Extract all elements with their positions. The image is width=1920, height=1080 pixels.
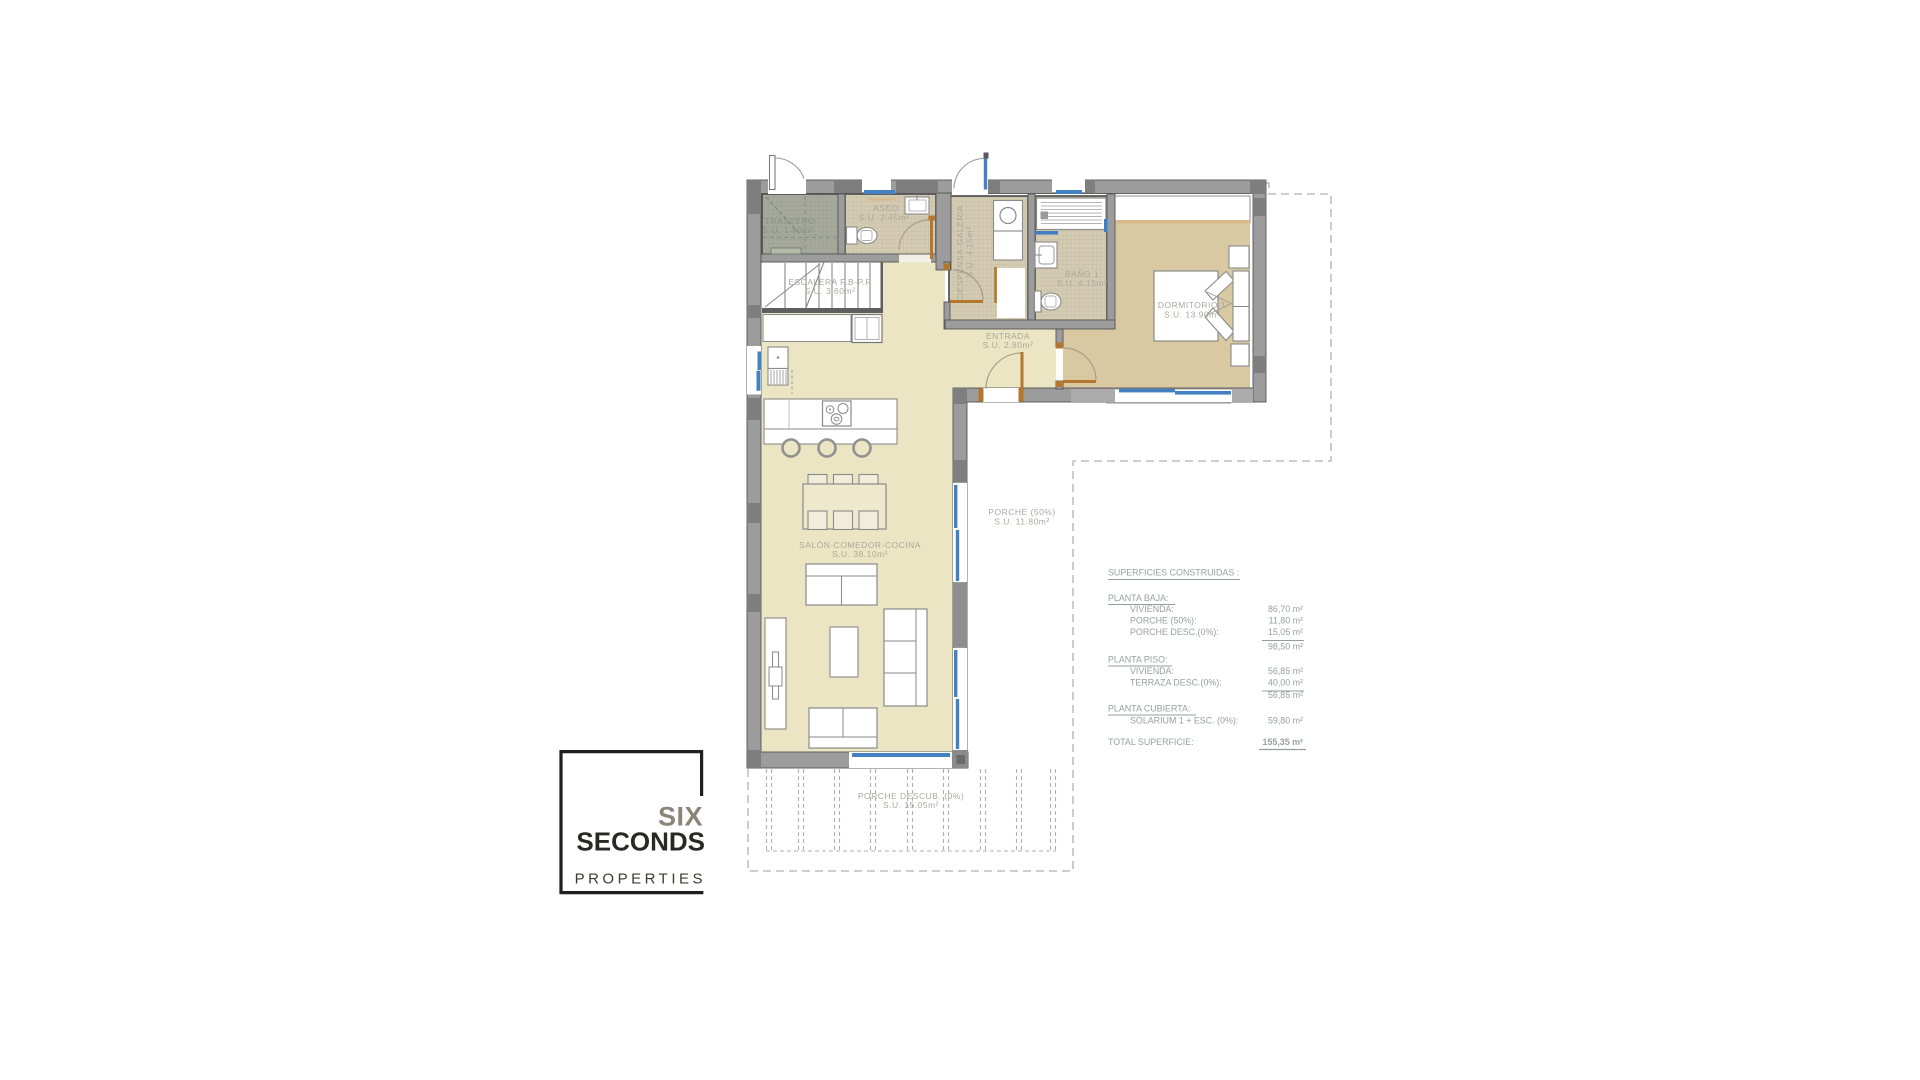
svg-text:S.U. 11.80m²: S.U. 11.80m² — [994, 517, 1049, 527]
svg-text:S.U. 3.60m²: S.U. 3.60m² — [805, 286, 856, 296]
svg-text:S.U. 1.90m²: S.U. 1.90m² — [763, 225, 814, 235]
svg-text:VIVIENDA:: VIVIENDA: — [1130, 604, 1174, 614]
svg-text:98,50 m²: 98,50 m² — [1268, 642, 1303, 652]
svg-text:40,00 m²: 40,00 m² — [1268, 678, 1303, 688]
svg-text:DESPENSA-GALERIA: DESPENSA-GALERIA — [955, 205, 965, 299]
svg-text:ASEO: ASEO — [873, 203, 899, 213]
svg-text:S.U. 38.10m²: S.U. 38.10m² — [832, 549, 888, 559]
svg-text:56,85 m²: 56,85 m² — [1268, 690, 1303, 700]
svg-text:PORCHE (50%):: PORCHE (50%): — [1130, 616, 1197, 626]
svg-text:TOTAL SUPERFICIE:: TOTAL SUPERFICIE: — [1108, 737, 1194, 747]
svg-text:TERRAZA DESC.(0%):: TERRAZA DESC.(0%): — [1130, 678, 1222, 688]
svg-text:SUPERFICIES CONSTRUIDAS :: SUPERFICIES CONSTRUIDAS : — [1108, 568, 1239, 578]
svg-text:S.U. 4.15m²: S.U. 4.15m² — [1057, 278, 1108, 288]
svg-text:PROPERTIES: PROPERTIES — [575, 871, 706, 888]
svg-text:VIVIENDA:: VIVIENDA: — [1130, 666, 1174, 676]
svg-text:PLANTA PISO:: PLANTA PISO: — [1108, 655, 1168, 665]
svg-text:PORCHE DESC.(0%):: PORCHE DESC.(0%): — [1130, 627, 1219, 637]
svg-text:56,85 m²: 56,85 m² — [1268, 666, 1303, 676]
svg-text:S.U. 4.15m²: S.U. 4.15m² — [965, 227, 975, 278]
svg-text:SOLARIUM 1 + ESC. (0%):: SOLARIUM 1 + ESC. (0%): — [1130, 716, 1238, 726]
svg-text:15,05 m²: 15,05 m² — [1268, 627, 1303, 637]
svg-text:PLANTA CUBIERTA:: PLANTA CUBIERTA: — [1108, 704, 1190, 714]
svg-text:S.U. 13.90m²: S.U. 13.90m² — [1164, 310, 1220, 320]
svg-text:S.U. 2.80m²: S.U. 2.80m² — [983, 340, 1034, 350]
svg-text:S.U. 2.45m²: S.U. 2.45m² — [859, 213, 910, 223]
svg-text:SECONDS: SECONDS — [576, 827, 705, 857]
svg-text:DORMITORIO 1: DORMITORIO 1 — [1158, 300, 1226, 310]
svg-text:155,35 m²: 155,35 m² — [1263, 737, 1304, 747]
svg-text:PLANTA BAJA:: PLANTA BAJA: — [1108, 593, 1169, 603]
svg-text:PORCHE (50%): PORCHE (50%) — [988, 507, 1055, 517]
svg-text:59,80 m²: 59,80 m² — [1268, 716, 1303, 726]
svg-text:86,70 m²: 86,70 m² — [1268, 604, 1303, 614]
svg-text:11,80 m²: 11,80 m² — [1269, 616, 1303, 626]
svg-text:S.U. 15.05m²: S.U. 15.05m² — [883, 800, 939, 810]
